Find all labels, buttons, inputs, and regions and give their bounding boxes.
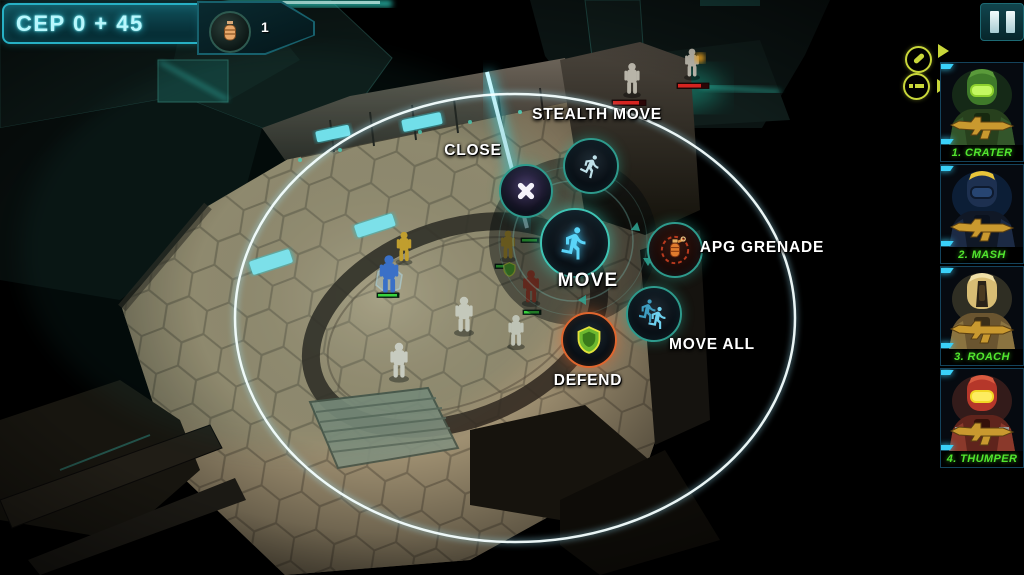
double-runner-icon xyxy=(639,299,669,329)
roster-card-mash[interactable]: 2. MASH xyxy=(940,164,1024,264)
mash-portrait xyxy=(941,165,1023,247)
unit-name-label: 4. THUMPER xyxy=(941,451,1023,467)
apg-grenade-button[interactable] xyxy=(647,222,703,278)
stealth-move-label: STEALTH MOVE xyxy=(532,106,662,124)
pause-icon xyxy=(1006,11,1015,33)
pause-button[interactable] xyxy=(980,3,1024,41)
crater-portrait xyxy=(941,63,1023,145)
move-button[interactable] xyxy=(540,208,610,278)
move-all-label: MOVE ALL xyxy=(669,336,755,354)
close-x-icon xyxy=(513,178,539,204)
shield-icon xyxy=(575,326,603,354)
stealth-move-button[interactable] xyxy=(563,138,619,194)
stealth-runner-icon xyxy=(575,150,607,182)
grenade-inventory-icon xyxy=(209,11,251,53)
roach-portrait xyxy=(941,267,1023,349)
grenade-count: 1 xyxy=(261,19,269,35)
pause-icon xyxy=(990,11,999,33)
unit-name-label: 2. MASH xyxy=(941,247,1023,263)
move-label: MOVE xyxy=(558,270,619,292)
apg-grenade-label: APG GRENADE xyxy=(700,239,824,257)
grenade-glyph xyxy=(220,20,240,44)
drag-arrow-icon xyxy=(938,44,949,58)
roster-card-thumper[interactable]: 4. THUMPER xyxy=(940,368,1024,468)
close-label: CLOSE xyxy=(444,142,501,160)
runner-icon xyxy=(557,225,593,261)
unit-name-label: 3. ROACH xyxy=(941,349,1023,365)
move-all-button[interactable] xyxy=(626,286,682,342)
cep-score-label: CEP 0 + 45 xyxy=(4,11,144,37)
unit-name-label: 1. CRATER xyxy=(941,145,1023,161)
close-button[interactable] xyxy=(499,164,553,218)
game-screen: CEP 0 + 45 1 xyxy=(0,0,1024,575)
grenade-icon xyxy=(660,235,690,265)
roster-card-roach[interactable]: 3. ROACH xyxy=(940,266,1024,366)
thumper-portrait xyxy=(941,369,1023,451)
cep-score-banner: CEP 0 + 45 xyxy=(2,3,202,44)
defend-button[interactable] xyxy=(561,312,617,368)
roster-card-crater[interactable]: 1. CRATER xyxy=(940,62,1024,162)
battlefield-scene xyxy=(0,0,1024,575)
defend-label: DEFEND xyxy=(554,372,623,390)
